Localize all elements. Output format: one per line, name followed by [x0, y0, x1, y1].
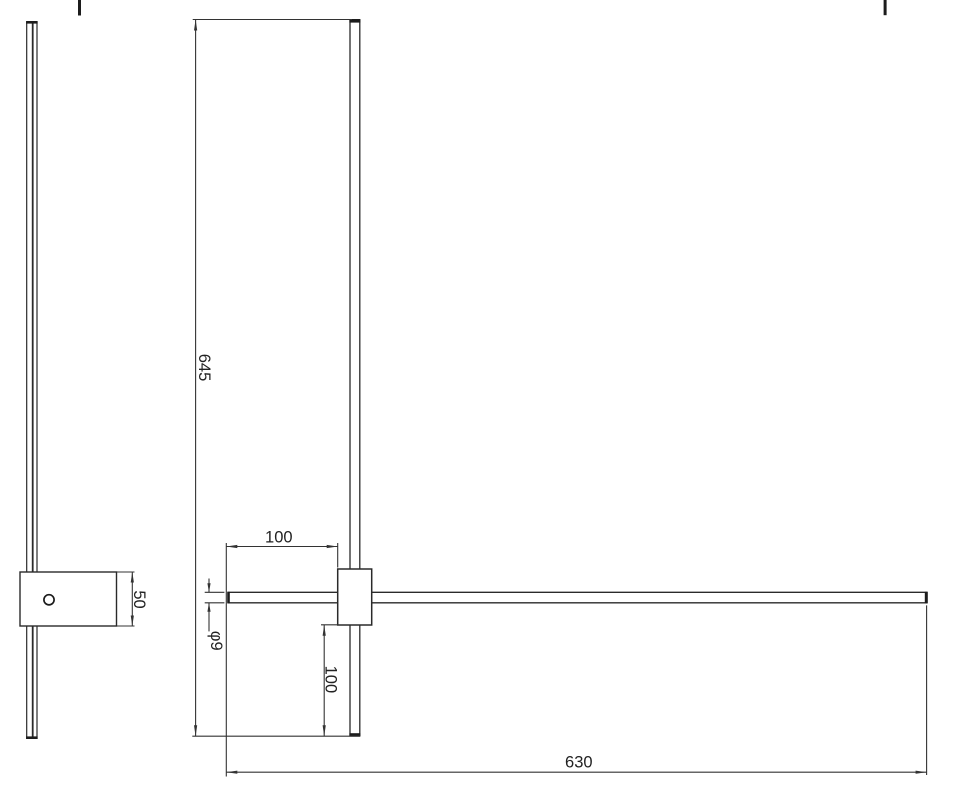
svg-text:50: 50	[130, 590, 148, 608]
svg-text:645: 645	[195, 354, 213, 382]
svg-text:630: 630	[565, 754, 593, 772]
svg-text:100: 100	[265, 528, 293, 546]
svg-text:100: 100	[321, 666, 339, 694]
svg-text:φ9: φ9	[207, 631, 225, 651]
